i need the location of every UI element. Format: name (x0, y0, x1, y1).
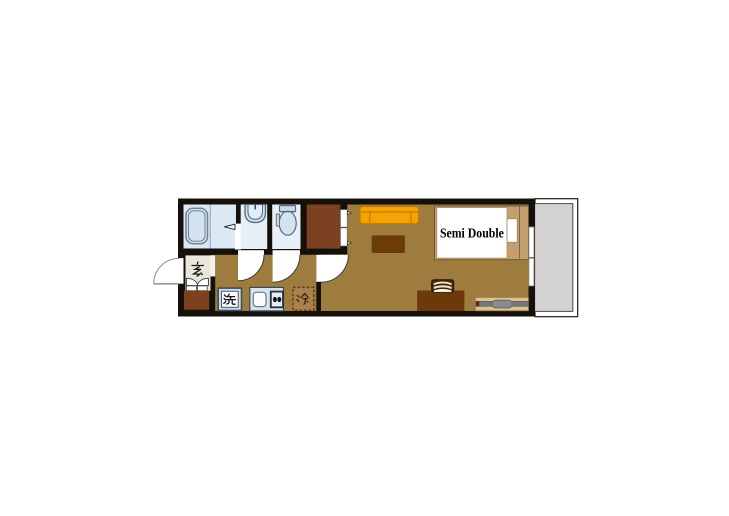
svg-text:Semi Double: Semi Double (440, 226, 504, 241)
